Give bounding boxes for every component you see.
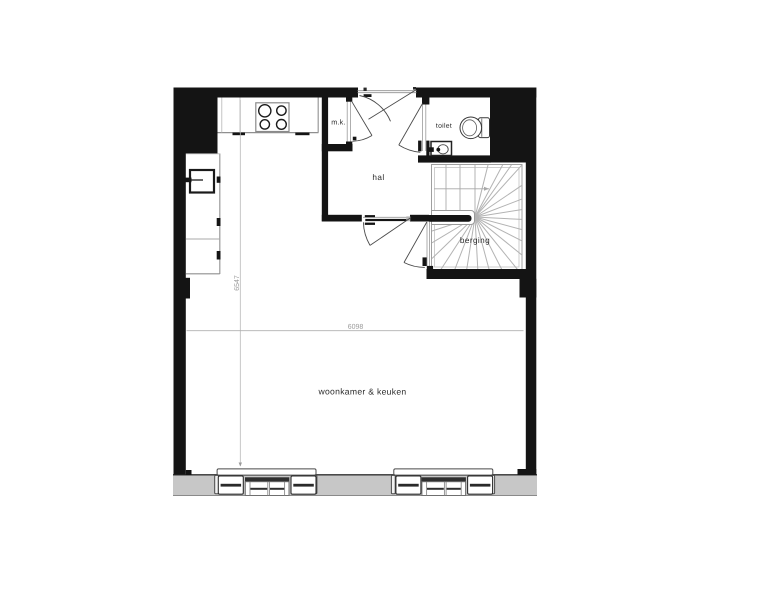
svg-text:6098: 6098	[348, 324, 364, 331]
svg-text:hal: hal	[372, 173, 384, 182]
svg-text:woonkamer & keuken: woonkamer & keuken	[317, 386, 406, 396]
svg-text:berging: berging	[460, 236, 490, 245]
svg-text:toilet: toilet	[436, 123, 452, 130]
svg-text:m.k.: m.k.	[331, 117, 345, 126]
svg-text:6547: 6547	[234, 275, 241, 291]
